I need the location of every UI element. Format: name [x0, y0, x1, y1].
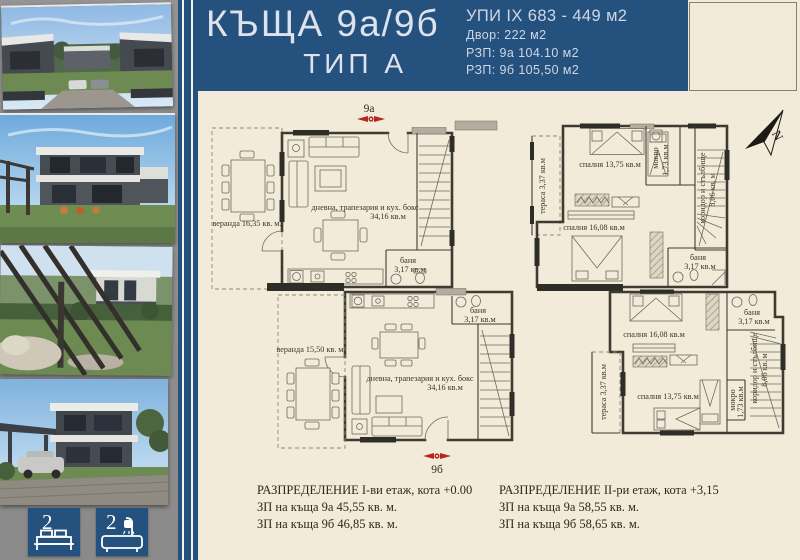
- wardrobe-9a: [568, 194, 639, 219]
- north-arrow-icon: N: [745, 110, 787, 155]
- bedroom-13-9a-label: спалня 13,75 кв.м: [579, 160, 641, 169]
- bedroom-13-9b-label: спалня 13,75 кв.м: [637, 392, 699, 401]
- plot-info-line: Двор: 222 м2: [466, 27, 627, 45]
- wet-9b-area: 1,73 кв.м: [736, 386, 745, 417]
- terrace-9a-label: тераса 3,37 кв.м: [538, 158, 547, 214]
- second-floor-caption: РАЗПРЕДЕЛЕНИЕ II-ри етаж, кота +3,15 ЗП …: [499, 482, 719, 533]
- stairs-9b: [478, 324, 510, 440]
- second-floor-plan: N тераса 3,37 кв.м спалня 13,75 кв.м мок…: [520, 100, 800, 480]
- living-9a-furniture: [288, 137, 367, 260]
- unit-9b-marker-label: 9б: [431, 464, 443, 476]
- stairs-9a: [417, 133, 452, 250]
- header: КЪЩА 9а/9б ТИП А УПИ IX 683 - 449 м2 Дво…: [198, 0, 688, 91]
- first-floor-caption-title: РАЗПРЕДЕЛЕНИЕ I-ви етаж, кота +0.00: [257, 482, 472, 499]
- party-wall-upper: [537, 284, 623, 291]
- pinstripe-divider: [178, 0, 198, 560]
- bathrooms-stat-badge: 2: [96, 508, 148, 556]
- bedroom-13-9b-furniture: [654, 380, 720, 430]
- photo-house-front: [0, 113, 175, 243]
- bath-9b-upper-name: баня: [744, 308, 760, 317]
- first-floor-plan: 9а веранда 16,35 кв. м. баня 3,17 кв.м: [200, 95, 520, 480]
- living-9b-name: дневна, трапезария и кух. бокс: [367, 374, 474, 383]
- bedroom-16-9b-furniture: [630, 294, 719, 330]
- plot-info-block: УПИ IX 683 - 449 м2 Двор: 222 м2 РЗП: 9а…: [466, 5, 627, 80]
- unit-9a-marker-label: 9а: [364, 103, 375, 115]
- veranda-9a-dining-table: [222, 151, 274, 221]
- first-floor-caption-9a: ЗП на къща 9а 45,55 кв. м.: [257, 499, 472, 516]
- page-title: КЪЩА 9а/9б: [206, 1, 421, 47]
- second-floor-caption-9a: ЗП на къща 9а 58,55 кв. м.: [499, 499, 719, 516]
- unit-9a-entrance-marker-icon: [357, 116, 385, 122]
- bedroom-16-9a-label: спалня 16,08 кв.м: [563, 223, 625, 232]
- bed-icon: [34, 531, 74, 551]
- terrace-9b-label: тераса 3,37 кв.м: [599, 364, 608, 420]
- bath-9a-upper-area: 3,17 кв.м: [684, 262, 715, 271]
- title-block: КЪЩА 9а/9б ТИП А: [206, 1, 421, 81]
- wardrobe-9b: [633, 344, 697, 367]
- living-9a-name: дневна, трапезария и кух. бокс: [312, 203, 419, 212]
- bath-9b-name: баня: [470, 306, 486, 315]
- party-wall: [267, 283, 344, 291]
- photo-street-view: [1, 2, 173, 110]
- veranda-9b-dining-table: [287, 359, 339, 429]
- empty-frame-box: [689, 2, 797, 91]
- unit-9b-entrance-marker-icon: [423, 453, 451, 459]
- bath-9b-upper-area: 3,17 кв.м: [738, 317, 769, 326]
- first-floor-caption: РАЗПРЕДЕЛЕНИЕ I-ви етаж, кота +0.00 ЗП н…: [257, 482, 472, 533]
- plot-info-line: РЗП: 9б 105,50 м2: [466, 62, 627, 80]
- bedrooms-stat-badge: 2: [28, 508, 80, 556]
- photo-house-corner: [0, 379, 168, 505]
- bathrooms-count: 2: [106, 510, 117, 534]
- corridor-9a-name: коридор и стълбище: [698, 152, 707, 223]
- plot-info-line: РЗП: 9а 104.10 м2: [466, 45, 627, 63]
- wet-9a-area: 1,73 кв.м: [661, 144, 670, 175]
- wet-9a-name: мокро: [651, 147, 660, 168]
- bedroom-16-9a-furniture: [572, 232, 663, 281]
- photo-garden-pergola: [0, 245, 173, 376]
- bath-9b-area: 3,17 кв.м: [464, 315, 495, 324]
- veranda-9a-label: веранда 16,35 кв. м.: [212, 219, 281, 228]
- plot-info-line: УПИ IX 683 - 449 м2: [466, 5, 627, 27]
- kitchen-9b: [350, 294, 434, 308]
- bedroom-16-9b-label: спалня 16,08 кв.м: [623, 330, 685, 339]
- brochure-page: { "header": { "title_line1": "КЪЩА 9а/9б…: [0, 0, 800, 560]
- living-9a-area: 34,16 кв.м: [370, 212, 406, 221]
- first-floor-caption-9b: ЗП на къща 9б 46,85 кв. м.: [257, 516, 472, 533]
- bath-9a-name: баня: [400, 256, 416, 265]
- second-floor-caption-title: РАЗПРЕДЕЛЕНИЕ II-ри етаж, кота +3,15: [499, 482, 719, 499]
- kitchen-9a: [288, 269, 383, 284]
- living-9b-area: 34,16 кв.м: [427, 383, 463, 392]
- second-floor-caption-9b: ЗП на къща 9б 58,65 кв. м.: [499, 516, 719, 533]
- veranda-9b-label: веранда 15,50 кв. м.: [276, 345, 345, 354]
- bath-9a-upper-name: баня: [690, 253, 706, 262]
- page-subtitle: ТИП А: [206, 47, 421, 81]
- photo-sidebar: 2 2: [0, 0, 178, 560]
